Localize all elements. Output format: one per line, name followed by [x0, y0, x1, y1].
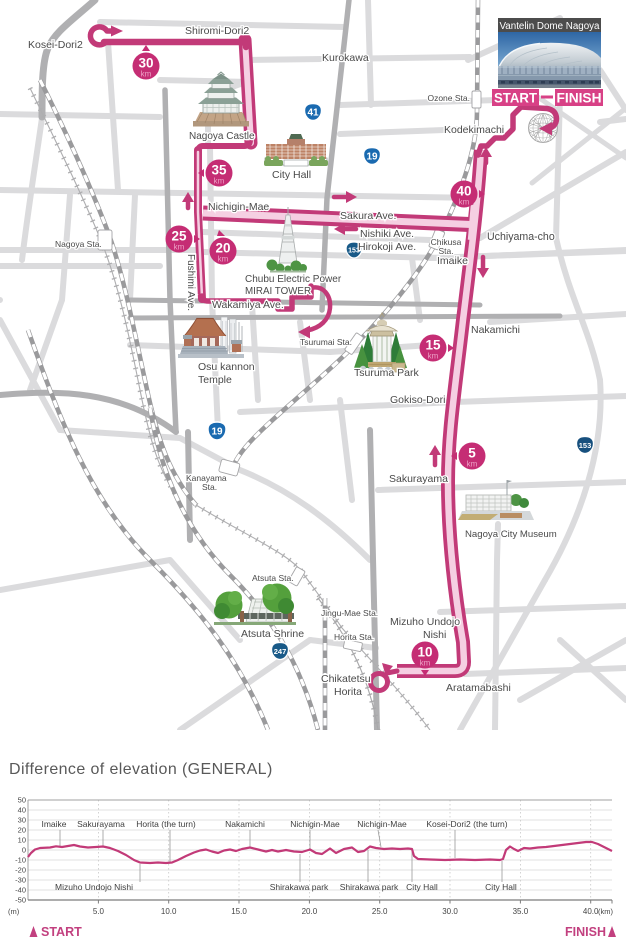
svg-text:Sakura Ave.: Sakura Ave.: [340, 210, 396, 222]
svg-text:(km): (km): [598, 907, 613, 916]
svg-text:0: 0: [22, 846, 26, 855]
svg-text:Horita (the turn): Horita (the turn): [136, 819, 196, 829]
svg-text:Nakamichi: Nakamichi: [225, 819, 265, 829]
svg-text:35.0: 35.0: [513, 907, 529, 916]
svg-text:Nishi: Nishi: [423, 629, 446, 641]
svg-text:Nagoya City Museum: Nagoya City Museum: [465, 529, 557, 540]
svg-text:Kosei-Dori2 (the turn): Kosei-Dori2 (the turn): [426, 819, 507, 829]
svg-text:km: km: [214, 177, 225, 186]
svg-text:FINISH: FINISH: [565, 925, 606, 939]
svg-text:Imaike: Imaike: [437, 255, 468, 267]
svg-text:Wakamiya Ave.: Wakamiya Ave.: [212, 299, 284, 311]
svg-text:Horita Sta.: Horita Sta.: [334, 632, 374, 642]
svg-text:15: 15: [425, 338, 441, 353]
svg-text:Kurokawa: Kurokawa: [322, 52, 369, 64]
svg-text:40.0: 40.0: [583, 907, 599, 916]
svg-text:20.0: 20.0: [302, 907, 318, 916]
svg-text:Aratamabashi: Aratamabashi: [446, 682, 511, 694]
svg-text:City Hall: City Hall: [406, 882, 438, 892]
svg-text:20: 20: [215, 241, 230, 256]
svg-text:City Hall: City Hall: [485, 882, 517, 892]
svg-text:START: START: [41, 925, 82, 939]
svg-text:Fushimi Ave.: Fushimi Ave.: [185, 254, 196, 311]
svg-text:Atsuta Sta.: Atsuta Sta.: [252, 573, 294, 583]
svg-text:30: 30: [18, 816, 26, 825]
svg-text:-50: -50: [15, 896, 26, 905]
svg-text:Atsuta Shrine: Atsuta Shrine: [241, 628, 304, 640]
svg-text:(m): (m): [8, 907, 20, 916]
svg-text:Sta.: Sta.: [202, 482, 217, 492]
svg-text:-40: -40: [15, 886, 26, 895]
svg-text:Nichigin-Mae: Nichigin-Mae: [208, 201, 269, 213]
svg-text:km: km: [141, 70, 152, 79]
svg-text:10: 10: [18, 836, 26, 845]
svg-text:Mizuho Undojo Nishi: Mizuho Undojo Nishi: [55, 882, 133, 892]
svg-text:15.0: 15.0: [231, 907, 247, 916]
svg-text:Shirakawa park: Shirakawa park: [340, 882, 399, 892]
svg-text:-10: -10: [15, 856, 26, 865]
svg-text:Jingu-Mae Sta.: Jingu-Mae Sta.: [321, 608, 378, 618]
svg-text:-20: -20: [15, 866, 26, 875]
svg-text:km: km: [218, 255, 229, 264]
svg-text:Nishiki Ave.: Nishiki Ave.: [360, 228, 414, 240]
svg-text:Vantelin Dome Nagoya: Vantelin Dome Nagoya: [499, 21, 600, 32]
svg-text:Hirokoji Ave.: Hirokoji Ave.: [358, 241, 416, 253]
svg-text:41: 41: [307, 108, 319, 119]
svg-text:Gokiso-Dori: Gokiso-Dori: [390, 394, 445, 406]
svg-text:City Hall: City Hall: [272, 169, 311, 181]
svg-text:19: 19: [211, 427, 223, 438]
svg-text:5: 5: [468, 446, 476, 461]
svg-text:10: 10: [417, 645, 432, 660]
svg-text:30.0: 30.0: [442, 907, 458, 916]
svg-text:20: 20: [18, 826, 26, 835]
svg-text:50: 50: [18, 796, 26, 805]
svg-text:km: km: [428, 352, 439, 361]
svg-text:Temple: Temple: [198, 374, 232, 386]
svg-text:Horita: Horita: [334, 686, 362, 698]
svg-text:km: km: [459, 198, 470, 207]
svg-text:10.0: 10.0: [161, 907, 177, 916]
svg-text:35: 35: [211, 163, 227, 178]
svg-text:30: 30: [138, 56, 153, 71]
svg-text:km: km: [420, 659, 431, 668]
svg-text:40: 40: [456, 184, 471, 199]
svg-text:19: 19: [366, 152, 378, 163]
svg-text:FINISH: FINISH: [557, 90, 602, 106]
svg-text:Osu kannon: Osu kannon: [198, 361, 255, 373]
svg-text:5.0: 5.0: [93, 907, 105, 916]
svg-text:Uchiyama-cho: Uchiyama-cho: [487, 231, 555, 243]
svg-text:Ozone Sta.: Ozone Sta.: [427, 93, 470, 103]
svg-text:153: 153: [579, 441, 592, 450]
svg-text:Sakurayama: Sakurayama: [389, 473, 448, 485]
svg-text:Nagoya Castle: Nagoya Castle: [189, 131, 255, 142]
svg-text:-30: -30: [15, 876, 26, 885]
svg-text:Nagoya Sta.: Nagoya Sta.: [55, 239, 102, 249]
svg-text:Chubu Electric Power: Chubu Electric Power: [245, 274, 342, 285]
svg-text:km: km: [174, 243, 185, 252]
svg-text:MIRAI TOWER: MIRAI TOWER: [245, 286, 311, 297]
svg-text:Tsurumai Sta.: Tsurumai Sta.: [300, 337, 352, 347]
svg-text:247: 247: [274, 647, 287, 656]
svg-text:Kosei-Dori2: Kosei-Dori2: [28, 39, 83, 51]
svg-text:Shiromi-Dori2: Shiromi-Dori2: [185, 25, 249, 37]
svg-text:40: 40: [18, 806, 26, 815]
svg-text:Shirakawa park: Shirakawa park: [270, 882, 329, 892]
svg-text:Mizuho Undojo: Mizuho Undojo: [390, 616, 460, 628]
svg-text:Tsuruma Park: Tsuruma Park: [354, 367, 420, 379]
svg-text:Chikatetsu: Chikatetsu: [321, 673, 371, 685]
svg-text:km: km: [467, 460, 478, 469]
svg-text:Sakurayama: Sakurayama: [77, 819, 125, 829]
svg-text:START: START: [494, 90, 537, 106]
svg-text:25: 25: [171, 229, 187, 244]
svg-text:Kodekimachi: Kodekimachi: [444, 124, 504, 136]
svg-text:25.0: 25.0: [372, 907, 388, 916]
svg-text:Imaike: Imaike: [41, 819, 66, 829]
svg-text:Nichigin-Mae: Nichigin-Mae: [290, 819, 340, 829]
svg-text:Nakamichi: Nakamichi: [471, 324, 520, 336]
svg-text:Nichigin-Mae: Nichigin-Mae: [357, 819, 407, 829]
